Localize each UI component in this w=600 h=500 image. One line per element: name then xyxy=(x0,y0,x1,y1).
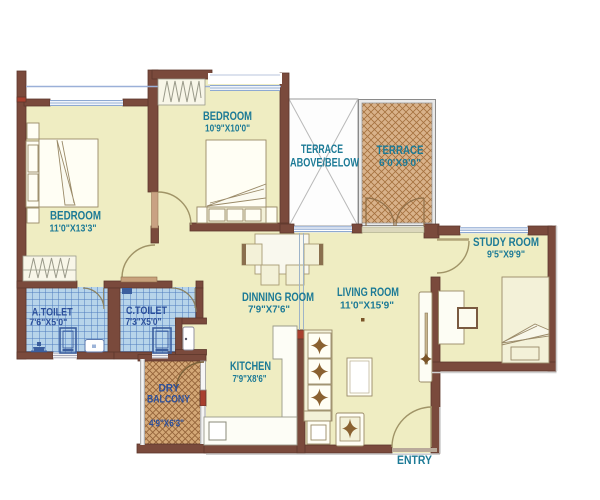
svg-text:6'0'X9'0": 6'0'X9'0" xyxy=(379,158,421,169)
svg-text:BALCONY: BALCONY xyxy=(147,394,191,406)
svg-text:7'3"X5'0": 7'3"X5'0" xyxy=(126,317,162,328)
svg-text:ABOVE/BELOW: ABOVE/BELOW xyxy=(290,158,359,170)
svg-text:9'5"X9'9": 9'5"X9'9" xyxy=(487,249,525,261)
svg-text:STUDY ROOM: STUDY ROOM xyxy=(473,237,539,249)
svg-text:11'0"X13'3": 11'0"X13'3" xyxy=(50,223,97,235)
svg-text:TERRACE: TERRACE xyxy=(377,145,424,157)
svg-text:ENTRY: ENTRY xyxy=(397,455,432,467)
svg-text:C.TOILET: C.TOILET xyxy=(126,305,167,317)
svg-text:11'0"X15'9": 11'0"X15'9" xyxy=(340,300,394,312)
svg-text:4'9"X6'3": 4'9"X6'3" xyxy=(149,419,184,430)
svg-text:BEDROOM: BEDROOM xyxy=(50,211,101,223)
svg-text:10'9"X10'0": 10'9"X10'0" xyxy=(205,123,250,135)
svg-text:7'6"X5'0": 7'6"X5'0" xyxy=(29,318,67,329)
svg-text:7'9"X7'6": 7'9"X7'6" xyxy=(248,304,290,316)
svg-text:BEDROOM: BEDROOM xyxy=(203,111,252,123)
svg-text:KITCHEN: KITCHEN xyxy=(230,361,271,373)
svg-text:DINNING ROOM: DINNING ROOM xyxy=(242,292,314,304)
svg-text:TERRACE: TERRACE xyxy=(301,144,343,156)
svg-text:LIVING ROOM: LIVING ROOM xyxy=(337,287,399,299)
svg-text:7'9"X8'6": 7'9"X8'6" xyxy=(233,374,267,385)
